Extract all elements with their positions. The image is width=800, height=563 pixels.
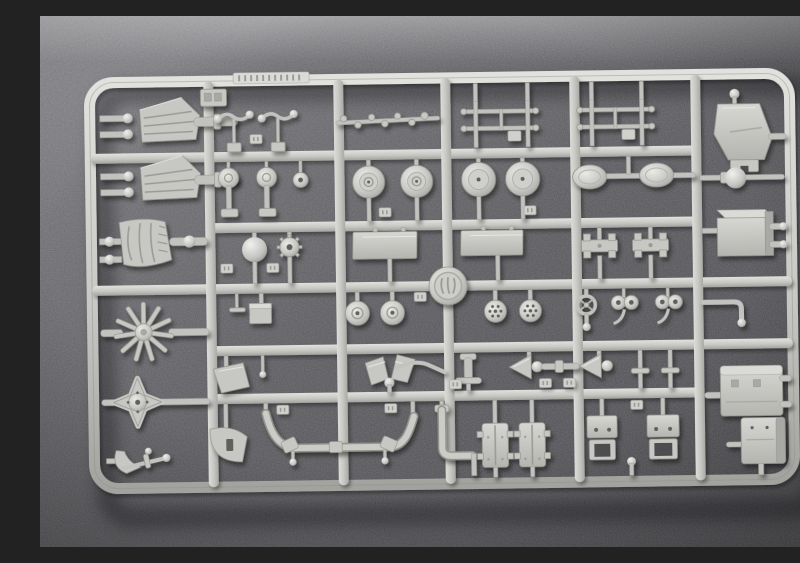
part-number-tab — [539, 378, 551, 387]
part-washer-disc — [293, 161, 308, 188]
part-number-tab — [267, 263, 279, 272]
part-ball-knob — [699, 167, 784, 189]
part-pick-lever — [106, 447, 170, 473]
part-road-wheel-small-1 — [345, 292, 369, 325]
part-elbow-rod — [703, 302, 746, 328]
part-funnel-horn-2 — [579, 351, 613, 378]
part-perforated-disc-2 — [519, 290, 541, 322]
runner-h2 — [205, 216, 702, 233]
mold-code-tab — [233, 72, 309, 84]
part-four-point-cross-hub — [101, 377, 210, 427]
part-seat-bracket-1 — [587, 399, 618, 460]
part-three-quarter-box — [702, 209, 788, 256]
part-large-block-2 — [726, 417, 786, 475]
sprue — [81, 61, 800, 501]
part-blade-flag — [213, 355, 266, 393]
part-ladder-frame-plate-1 — [477, 400, 514, 477]
part-twin-lens-link-2 — [655, 288, 682, 323]
part-oval-pad-1 — [572, 165, 606, 189]
part-tee-pin-pole-1 — [631, 350, 650, 388]
runner-h5 — [208, 387, 705, 404]
part-pin-small — [261, 355, 264, 371]
part-number-tab — [277, 405, 289, 414]
sprue-photo — [40, 16, 800, 547]
part-seat-bracket-2 — [647, 398, 680, 459]
part-large-block-1 — [704, 365, 792, 416]
part-rectangular-plate-2 — [460, 226, 523, 281]
part-number-tab — [414, 292, 426, 301]
corner-detail-plate — [200, 89, 226, 106]
part-elbow-drain-pipe — [435, 401, 477, 477]
part-oval-pads — [572, 155, 695, 189]
part-handrail-h-frame-1 — [460, 83, 539, 148]
part-perforated-disc-1 — [484, 290, 506, 322]
part-number-tab — [563, 378, 575, 387]
part-number-tab — [449, 380, 461, 389]
part-pin-small-ball — [259, 371, 266, 378]
part-funnel-horn-1 — [509, 352, 543, 379]
part-ribbed-cowl-panel — [99, 218, 208, 267]
part-sphere — [242, 232, 268, 283]
part-number-tab — [379, 208, 391, 217]
part-nubbed-linkage-rod — [335, 111, 440, 129]
part-tee-pin-pole-2 — [661, 350, 680, 388]
part-number-tab — [221, 264, 233, 273]
part-disc-head-post-1 — [218, 162, 239, 217]
part-rectangular-plate-1 — [352, 227, 417, 282]
maker-medallion — [429, 267, 468, 306]
part-sprocket-gear — [277, 232, 303, 283]
part-spring-bracket-2 — [632, 227, 669, 278]
part-radial-fan-wheel — [100, 301, 209, 362]
part-ball-top-lever-2 — [258, 110, 299, 152]
part-road-wheel-large-2 — [400, 159, 433, 220]
part-road-wheel-small-2 — [380, 292, 404, 325]
part-number-tab — [524, 206, 536, 215]
part-disc-head-post-2 — [256, 161, 277, 216]
part-hopper-trapezoid-panel — [713, 88, 786, 173]
part-number-tab — [250, 134, 262, 143]
part-twin-lens-link-1 — [611, 288, 638, 323]
part-ladder-frame-plate-2 — [514, 400, 551, 477]
part-spring-bracket-1 — [581, 228, 618, 279]
runner-h4 — [207, 338, 793, 356]
part-oval-pad-2 — [639, 163, 673, 187]
part-ball-top-lever-1 — [214, 111, 255, 153]
part-number-tab — [631, 400, 643, 409]
part-cube-on-stem — [249, 293, 271, 323]
part-v-twin-blade — [365, 354, 445, 393]
part-road-wheel-large-3 — [461, 158, 496, 219]
part-bottom-pin — [627, 457, 636, 476]
part-number-tab — [385, 404, 397, 413]
part-handrail-h-frame-2 — [576, 81, 655, 146]
part-tee-stem — [229, 294, 245, 312]
